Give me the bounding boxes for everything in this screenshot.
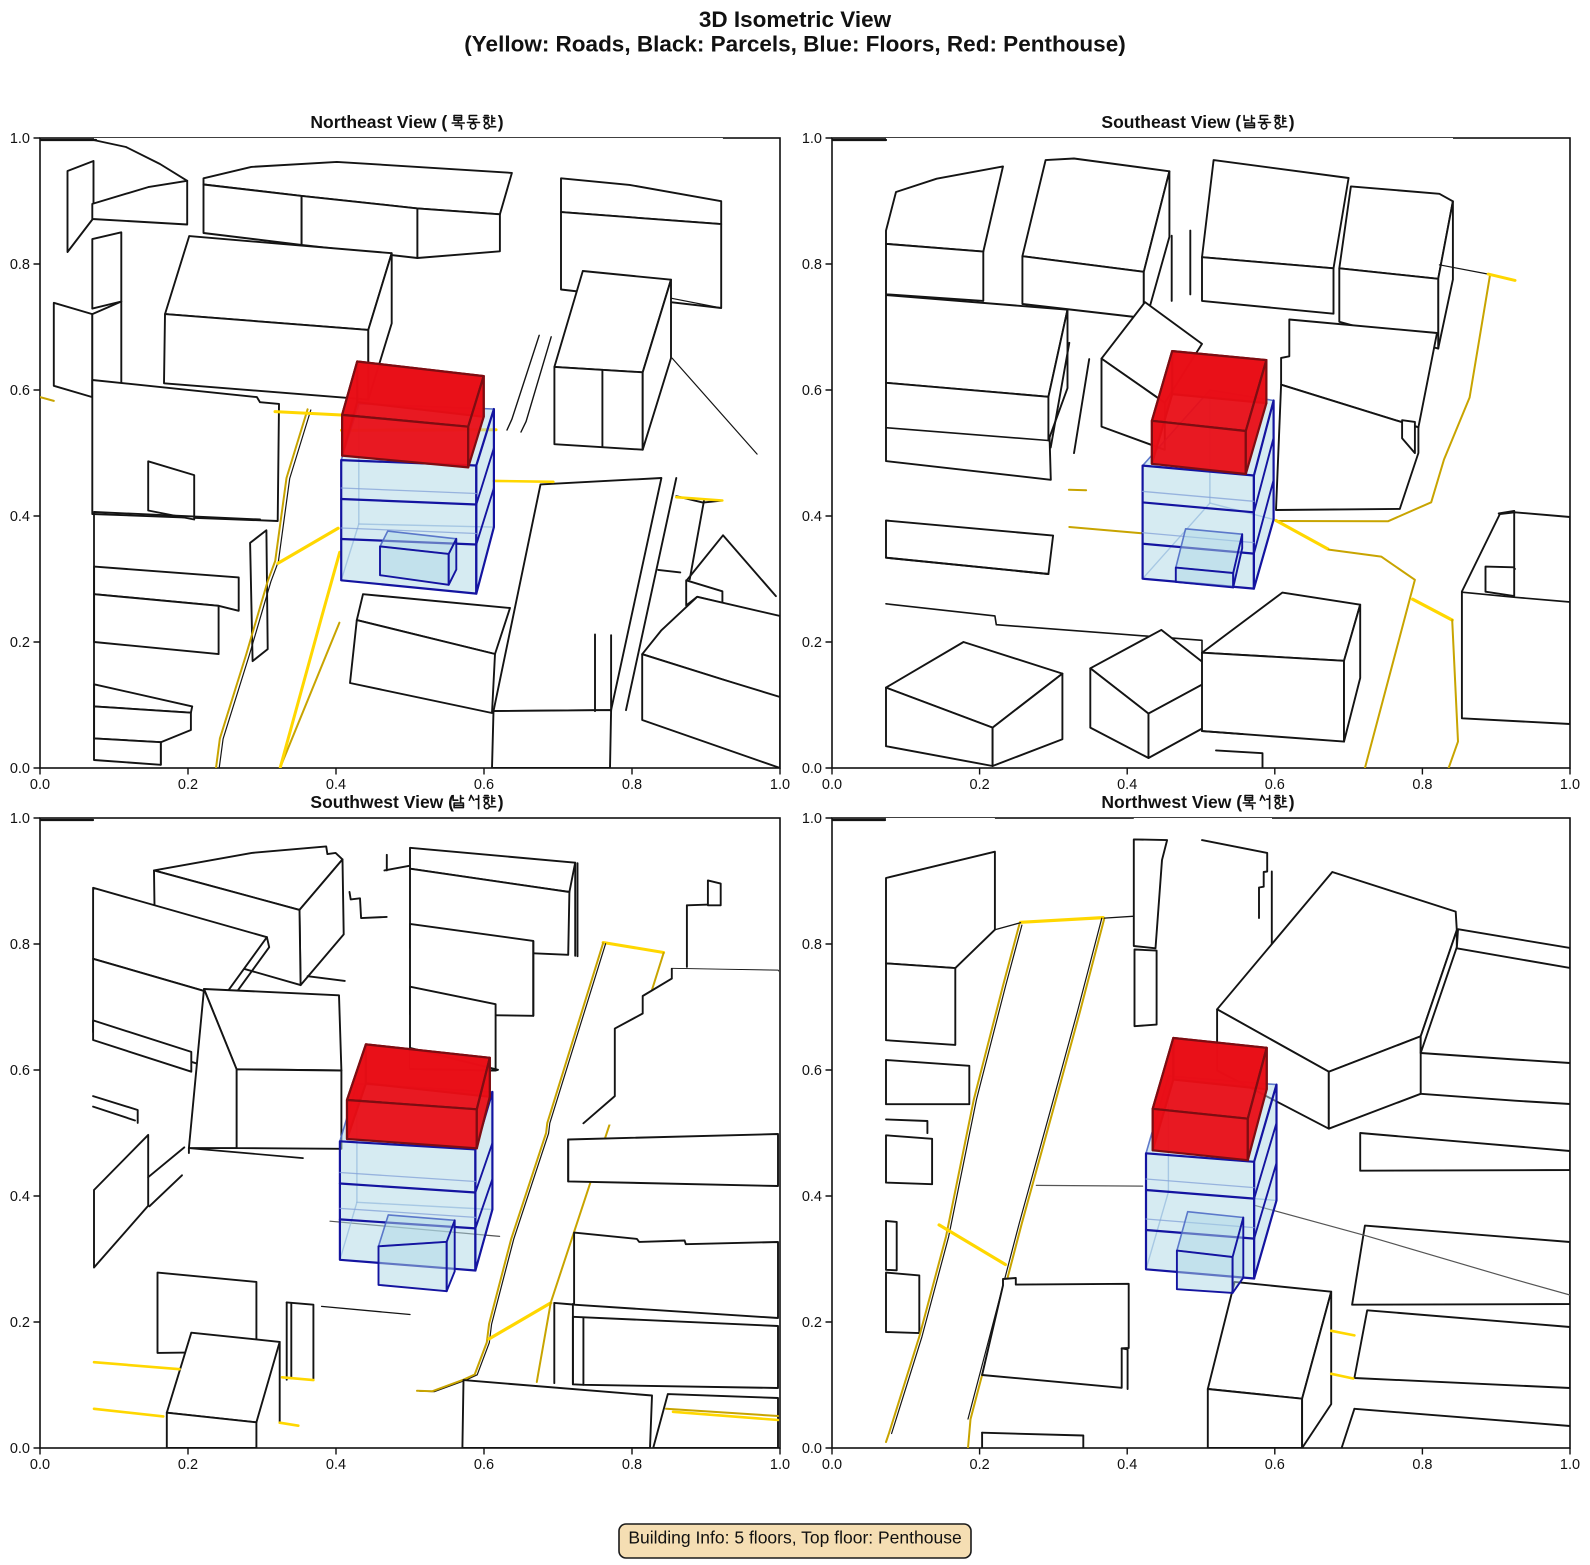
svg-text:1.0: 1.0 (1560, 1457, 1580, 1473)
svg-text:1.0: 1.0 (10, 811, 30, 827)
svg-text:0.0: 0.0 (30, 1457, 50, 1473)
svg-text:Northeast View (: Northeast View ( (310, 112, 447, 132)
svg-text:0.6: 0.6 (474, 777, 494, 793)
svg-text:0.4: 0.4 (10, 1189, 30, 1205)
svg-text:1.0: 1.0 (770, 1457, 790, 1473)
svg-text:): ) (498, 792, 504, 812)
svg-text:0.8: 0.8 (622, 777, 642, 793)
svg-text:0.2: 0.2 (802, 635, 822, 651)
svg-text:0.0: 0.0 (802, 1441, 822, 1457)
svg-text:3D Isometric View: 3D Isometric View (699, 7, 892, 32)
svg-text:0.4: 0.4 (1117, 1457, 1137, 1473)
svg-text:0.4: 0.4 (1117, 777, 1137, 793)
svg-text:0.2: 0.2 (970, 1457, 990, 1473)
svg-text:0.2: 0.2 (178, 1457, 198, 1473)
svg-text:0.0: 0.0 (30, 777, 50, 793)
svg-text:0.4: 0.4 (10, 509, 30, 525)
svg-text:0.8: 0.8 (10, 257, 30, 273)
svg-text:0.6: 0.6 (802, 383, 822, 399)
svg-text:Southeast View (: Southeast View ( (1101, 112, 1241, 132)
svg-text:(Yellow: Roads, Black: Parcels: (Yellow: Roads, Black: Parcels, Blue: Fl… (464, 32, 1125, 57)
svg-text:0.8: 0.8 (1412, 777, 1432, 793)
svg-text:Building Info: 5 floors, Top f: Building Info: 5 floors, Top floor: Pent… (628, 1528, 961, 1548)
svg-text:1.0: 1.0 (10, 131, 30, 147)
svg-text:): ) (1289, 792, 1295, 812)
svg-text:0.6: 0.6 (474, 1457, 494, 1473)
svg-text:0.0: 0.0 (822, 1457, 842, 1473)
svg-text:0.0: 0.0 (802, 761, 822, 777)
svg-text:0.6: 0.6 (1265, 777, 1285, 793)
svg-text:0.0: 0.0 (10, 761, 30, 777)
svg-text:0.6: 0.6 (1265, 1457, 1285, 1473)
svg-text:1.0: 1.0 (802, 131, 822, 147)
svg-text:0.2: 0.2 (178, 777, 198, 793)
svg-text:0.4: 0.4 (802, 509, 822, 525)
svg-text:0.6: 0.6 (10, 1063, 30, 1079)
svg-text:1.0: 1.0 (802, 811, 822, 827)
svg-text:Northwest View (: Northwest View ( (1101, 792, 1242, 812)
svg-text:0.0: 0.0 (10, 1441, 30, 1457)
svg-text:0.8: 0.8 (802, 937, 822, 953)
svg-text:Southwest View (: Southwest View ( (310, 792, 454, 812)
svg-text:0.8: 0.8 (622, 1457, 642, 1473)
svg-text:): ) (498, 112, 504, 132)
svg-text:0.8: 0.8 (10, 937, 30, 953)
svg-text:0.2: 0.2 (10, 635, 30, 651)
svg-text:0.2: 0.2 (970, 777, 990, 793)
svg-text:0.6: 0.6 (802, 1063, 822, 1079)
svg-text:0.8: 0.8 (802, 257, 822, 273)
svg-text:0.8: 0.8 (1412, 1457, 1432, 1473)
svg-text:0.4: 0.4 (326, 1457, 346, 1473)
svg-text:0.2: 0.2 (802, 1315, 822, 1331)
svg-text:): ) (1289, 112, 1295, 132)
svg-text:1.0: 1.0 (1560, 777, 1580, 793)
svg-text:1.0: 1.0 (770, 777, 790, 793)
svg-text:0.2: 0.2 (10, 1315, 30, 1331)
svg-text:0.0: 0.0 (822, 777, 842, 793)
svg-text:0.4: 0.4 (802, 1189, 822, 1205)
svg-text:0.4: 0.4 (326, 777, 346, 793)
svg-text:0.6: 0.6 (10, 383, 30, 399)
